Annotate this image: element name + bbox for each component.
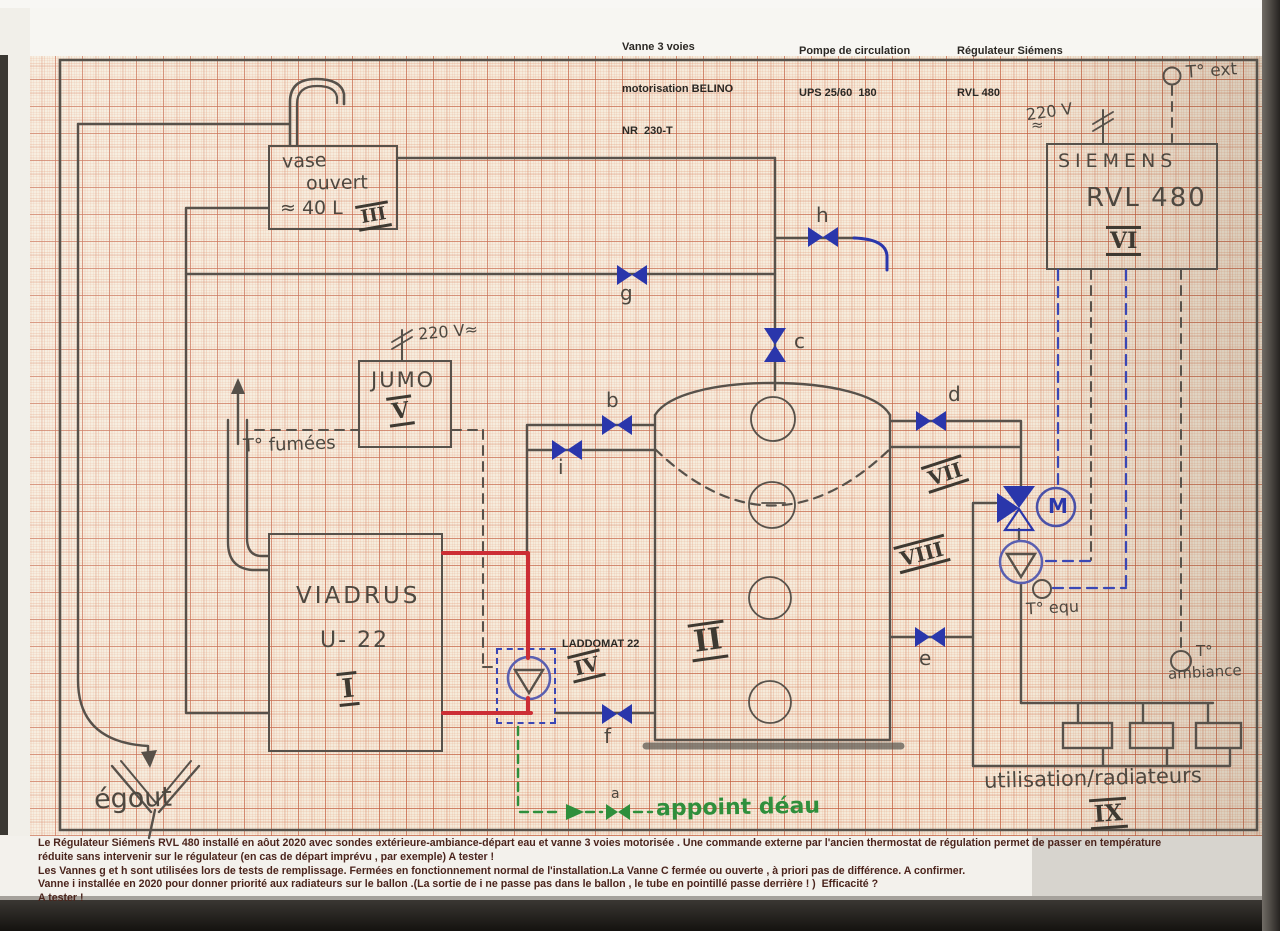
sensor-t-ext-label: T° ext xyxy=(1185,59,1237,83)
annotation-line: Vanne 3 voies xyxy=(622,40,733,54)
siemens-model: RVL 480 xyxy=(1086,183,1207,213)
siemens-brand: SIEMENS xyxy=(1058,150,1177,172)
sensor-t-ambiance-label-1: T° xyxy=(1196,642,1213,660)
laddomat-box xyxy=(496,648,556,724)
annotation-line: Régulateur Siémens xyxy=(957,44,1063,58)
appoint-deau-label: appoint déau xyxy=(656,794,820,822)
caption-line: réduite sans intervenir sur le régulateu… xyxy=(38,851,1161,865)
sensor-t-ambiance-label-2: ambiance xyxy=(1168,661,1243,683)
motor-letter: M xyxy=(1048,494,1068,518)
vase-label-2: ouvert xyxy=(306,171,368,194)
caption: Le Régulateur Siémens RVL 480 installé e… xyxy=(38,837,1161,906)
boiler-model: U- 22 xyxy=(320,628,389,653)
valve-c-label: c xyxy=(794,329,805,353)
annotation-valve-3-voies: Vanne 3 voies motorisation BELINO NR 230… xyxy=(622,12,733,166)
jumo-name: JUMO xyxy=(371,368,435,392)
numeral-boiler: I xyxy=(336,671,360,707)
annotation-line: Pompe de circulation xyxy=(799,44,910,58)
valve-f-label: f xyxy=(604,724,611,748)
sensor-t-equ-label: T° equ xyxy=(1026,597,1080,619)
laddomat-label: LADDOMAT 22 xyxy=(562,637,639,651)
scan-right-edge xyxy=(1262,0,1280,931)
valve-h-label: h xyxy=(816,203,829,227)
numeral-jumo: V xyxy=(386,394,415,427)
valve-b-label: b xyxy=(606,388,619,412)
annotation-line: RVL 480 xyxy=(957,86,1063,100)
caption-line: A tester ! xyxy=(38,892,1161,906)
scanned-heating-schematic: Vanne 3 voies motorisation BELINO NR 230… xyxy=(0,0,1280,931)
valve-a-label: a xyxy=(611,786,620,802)
egout-label: égout xyxy=(93,782,172,816)
caption-line: Vanne i installée en 2020 pour donner pr… xyxy=(38,878,1161,892)
annotation-line: UPS 25/60 180 xyxy=(799,86,910,100)
annotation-pompe: Pompe de circulation UPS 25/60 180 xyxy=(799,16,910,128)
valve-e-label: e xyxy=(919,646,931,670)
annotation-line: NR 230-T xyxy=(622,124,733,138)
vase-label-3: ≈ 40 L xyxy=(280,197,343,219)
annotation-line: motorisation BELINO xyxy=(622,82,733,96)
scan-top-edge xyxy=(0,0,1280,8)
boiler-brand: VIADRUS xyxy=(296,583,420,609)
caption-line: Les Vannes g et h sont utilisées lors de… xyxy=(38,865,1161,879)
numeral-radiators: IX xyxy=(1089,797,1128,830)
valve-i-label: i xyxy=(558,455,564,479)
valve-d-label: d xyxy=(948,382,961,406)
sensor-t-fumees-label: T° fumées xyxy=(243,432,336,456)
scan-left-edge xyxy=(0,55,8,835)
siemens-power-wave: ≈ xyxy=(1031,116,1044,134)
caption-line: Le Régulateur Siémens RVL 480 installé e… xyxy=(38,837,1161,851)
numeral-tank: II xyxy=(688,620,729,663)
numeral-siemens: VI xyxy=(1106,226,1141,256)
vase-label-1: vase xyxy=(282,149,327,173)
valve-g-label: g xyxy=(620,281,633,305)
